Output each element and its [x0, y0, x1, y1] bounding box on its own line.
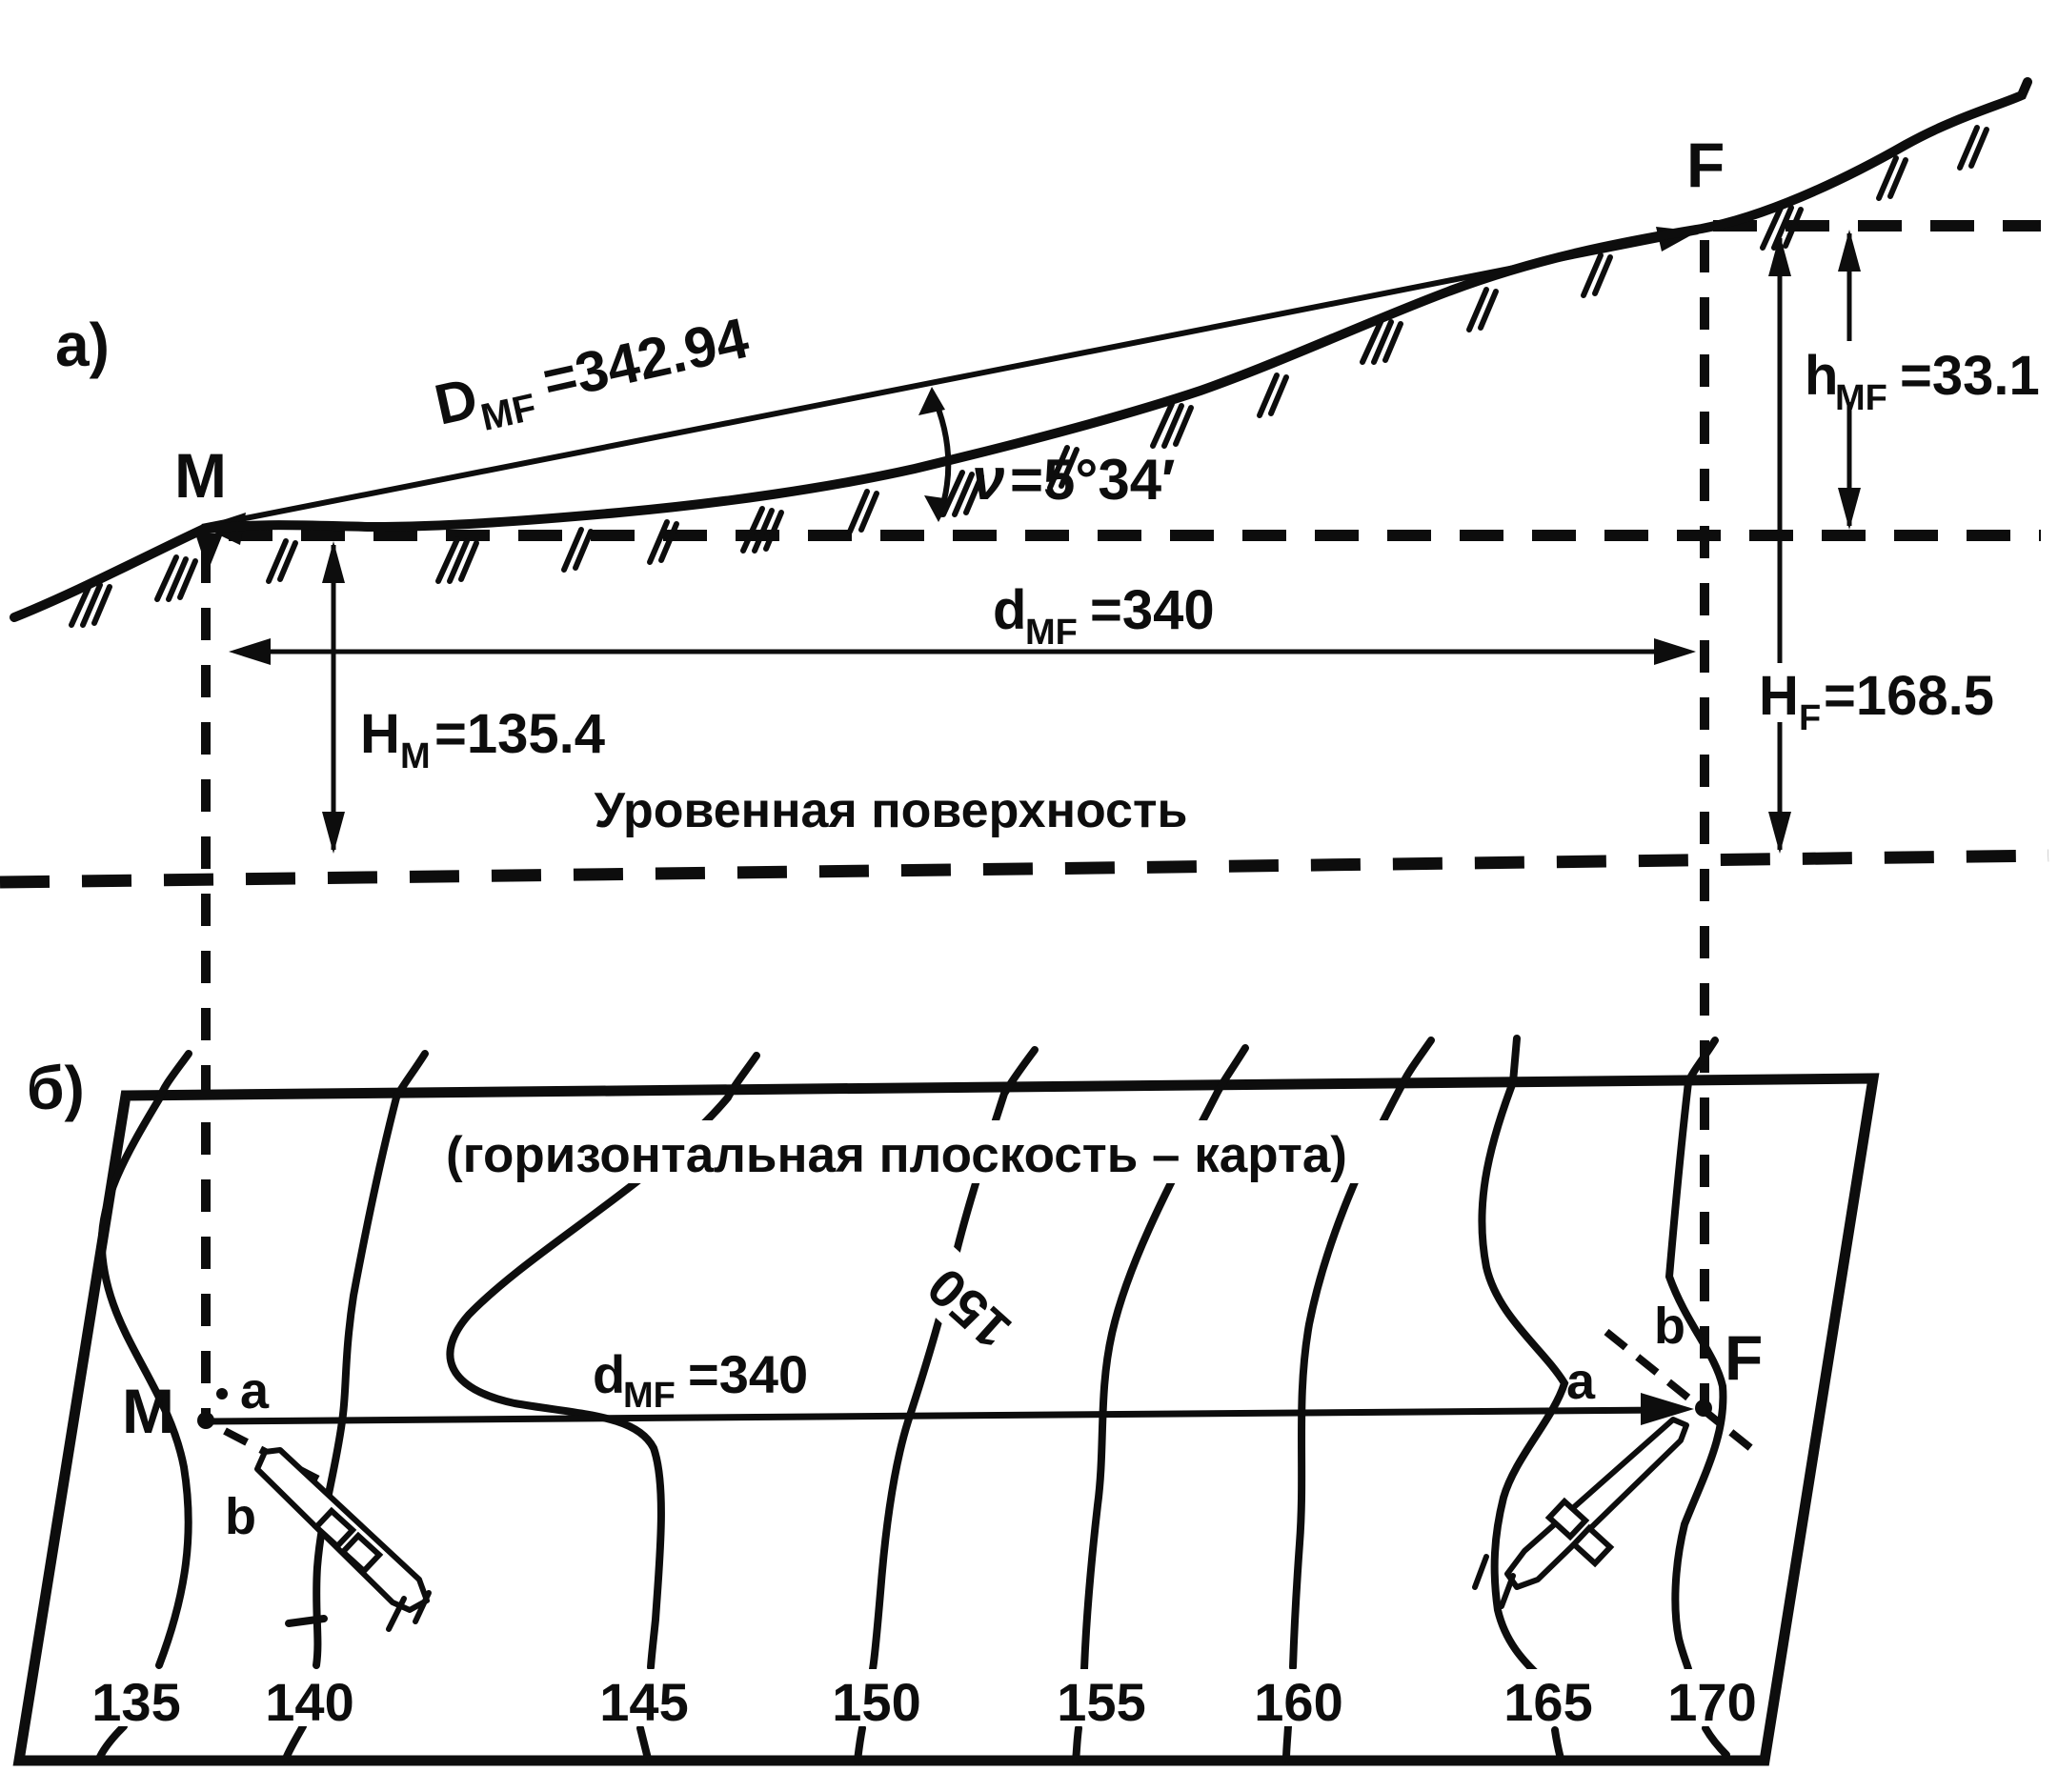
diagram-canvas: а) M F D MF =342.94 ν =5°34′ d MF =340 H… — [0, 0, 2058, 1792]
map-point-f-marker — [1695, 1399, 1712, 1417]
nu-symbol: ν — [972, 447, 1004, 513]
horizontal-distance-label: d MF =340 — [993, 579, 1215, 653]
slope-distance-base: D — [429, 366, 483, 437]
vertical-angle-value: =5°34′ — [1010, 448, 1176, 512]
contour-label-135: 135 — [91, 1672, 180, 1732]
slope-distance-value: =342.94 — [537, 306, 755, 413]
contour-label-155: 155 — [1057, 1672, 1145, 1732]
hmf-value: =33.1 — [1900, 345, 2040, 407]
map-point-f-label: F — [1725, 1322, 1763, 1393]
hf-value: =168.5 — [1824, 665, 1994, 727]
contour-140-slope-tick — [289, 1619, 324, 1623]
hm-base: H — [360, 703, 400, 765]
contour-label-140: 140 — [265, 1672, 353, 1732]
contour-165 — [1482, 1038, 1564, 1759]
panel-a-label: а) — [55, 311, 110, 379]
height-m-label: H M =135.4 — [351, 701, 654, 776]
map-f-point-b-label: b — [1654, 1298, 1685, 1355]
map-dmf-value: =340 — [688, 1344, 808, 1404]
map-point-m-marker — [197, 1412, 214, 1429]
dmf-value: =340 — [1090, 579, 1215, 641]
contour-170 — [1669, 1040, 1726, 1755]
map-point-a-marker — [216, 1388, 228, 1399]
map-m-point-a-label: a — [240, 1362, 270, 1420]
panel-b-label: б) — [27, 1054, 85, 1122]
map-mf-line — [208, 1393, 1694, 1425]
map-title: (горизонтальная плоскость – карта) — [400, 1120, 1395, 1183]
contour-label-145: 145 — [599, 1672, 688, 1732]
map-dmf-sub: MF — [623, 1376, 676, 1416]
contour-elevation-labels: 135 140 145 150 155 160 165 170 — [84, 1669, 1765, 1732]
terrain-hachures — [71, 128, 1987, 625]
slope-distance-sub: MF — [477, 386, 540, 438]
f-instrument — [1475, 1420, 1686, 1606]
hf-sub: F — [1799, 698, 1821, 738]
level-surface-dashed-line — [0, 856, 2048, 882]
map-m-point-b-label: b — [225, 1488, 256, 1545]
hm-value: =135.4 — [434, 703, 605, 765]
hmf-base: h — [1805, 345, 1838, 407]
vertical-angle-label: ν =5°34′ — [972, 447, 1176, 513]
surveying-diagram: а) M F D MF =342.94 ν =5°34′ d MF =340 H… — [0, 0, 2058, 1792]
height-f-label: H F =168.5 — [1749, 663, 2041, 738]
svg-text:(горизонтальная плоскость – ка: (горизонтальная плоскость – карта) — [446, 1127, 1347, 1183]
horizontal-distance-arrow — [229, 638, 1696, 665]
point-f-label: F — [1686, 130, 1725, 200]
map-panel: (горизонтальная плоскость – карта) 150 1… — [19, 1038, 1873, 1761]
hm-sub: M — [400, 736, 431, 776]
dmf-sub: MF — [1025, 613, 1078, 653]
hmf-sub: MF — [1835, 378, 1887, 418]
contour-label-160: 160 — [1254, 1672, 1342, 1732]
elevation-difference-label: h MF =33.1 — [1795, 341, 2058, 418]
profile-panel: а) M F D MF =342.94 ν =5°34′ d MF =340 H… — [0, 82, 2058, 1416]
hf-base: H — [1759, 665, 1799, 727]
dmf-base: d — [993, 579, 1026, 641]
contour-label-150: 150 — [832, 1672, 920, 1732]
contour-label-170: 170 — [1667, 1672, 1756, 1732]
contour-label-165: 165 — [1503, 1672, 1592, 1732]
inline-contour-label: 150 — [892, 1231, 1049, 1381]
map-point-m-label: M — [122, 1376, 174, 1446]
m-ground-point-marker — [195, 534, 223, 572]
level-surface-label: Уровенная поверхность — [595, 783, 1188, 838]
map-horizontal-distance-label: d MF =340 — [593, 1344, 808, 1416]
map-dmf-base: d — [593, 1344, 625, 1404]
map-f-point-a-label: a — [1566, 1353, 1596, 1410]
height-m-arrow — [322, 541, 345, 854]
point-m-label: M — [174, 440, 227, 511]
m-instrument — [257, 1450, 429, 1629]
height-f-arrow — [1768, 234, 1791, 854]
